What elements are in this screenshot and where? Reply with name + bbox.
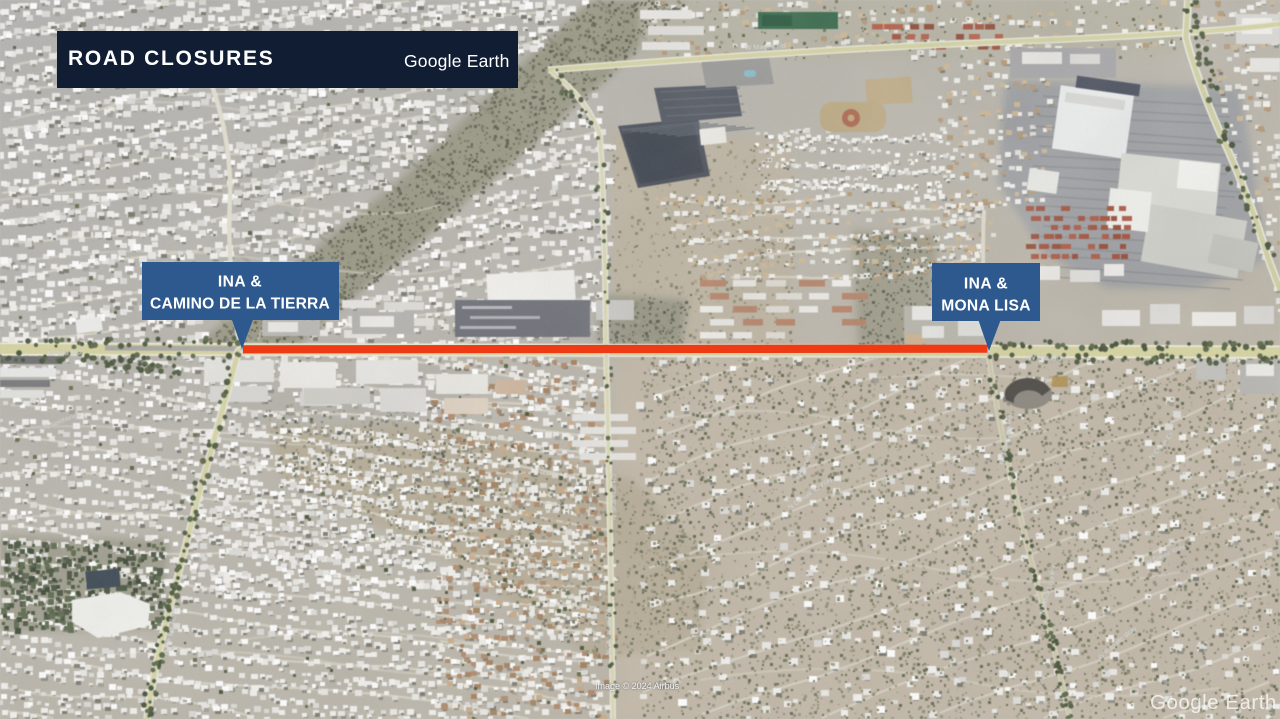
svg-text:INA &: INA & <box>964 276 1008 293</box>
svg-text:MONA LISA: MONA LISA <box>941 298 1031 315</box>
svg-text:CAMINO DE LA TIERRA: CAMINO DE LA TIERRA <box>150 296 330 313</box>
svg-text:INA &: INA & <box>218 274 262 291</box>
